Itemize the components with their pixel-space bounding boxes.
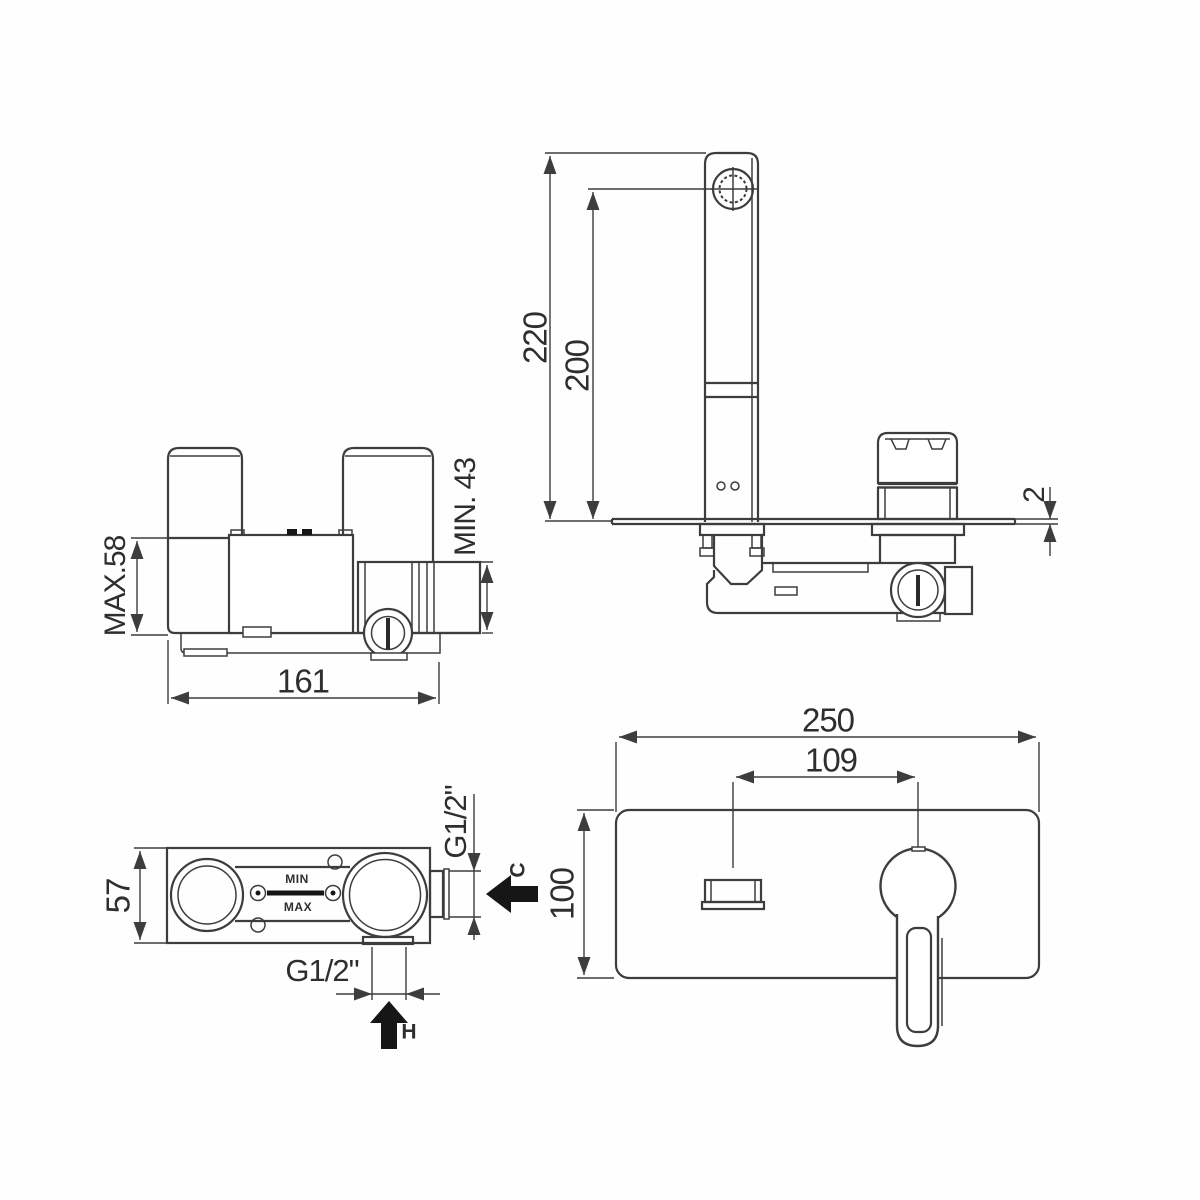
hot-inlet-arrow: H bbox=[370, 1001, 417, 1049]
cold-arrow-glyph bbox=[486, 875, 538, 913]
dim-220-label: 220 bbox=[517, 311, 554, 364]
rear-central-box bbox=[229, 529, 353, 637]
spout-outlet-lip bbox=[702, 902, 764, 909]
protection-cap-right bbox=[343, 448, 433, 562]
dim-total-height: 220 bbox=[517, 153, 706, 521]
rear-view: MAX.58 MIN. 43 161 bbox=[99, 448, 493, 704]
dim-max58-label: MAX.58 bbox=[99, 535, 132, 636]
top-valve-outer bbox=[343, 853, 427, 937]
box-tab-center-2 bbox=[302, 529, 312, 535]
dim-109-label: 109 bbox=[805, 742, 857, 779]
box-tab-right bbox=[339, 530, 352, 535]
dim-spout-to-handle: 109 bbox=[736, 742, 915, 779]
max-label: MAX bbox=[284, 900, 312, 914]
cold-connector-stub bbox=[430, 871, 443, 917]
handle-rosette bbox=[881, 849, 956, 924]
side-view: 220 200 2 bbox=[517, 153, 1058, 621]
spout-flange bbox=[700, 524, 764, 535]
side-view-wall-plate bbox=[612, 519, 1015, 524]
dim-plate-thickness: 2 bbox=[1015, 487, 1058, 556]
top-view: MIN MAX 57 G1/2" C bbox=[100, 785, 538, 1049]
protection-cap-left bbox=[168, 448, 242, 538]
drawing-canvas: 220 200 2 bbox=[0, 0, 1200, 1200]
cartridge-cylinder bbox=[880, 535, 955, 563]
dim-200-label: 200 bbox=[559, 339, 596, 392]
dim-min43-label: MIN. 43 bbox=[449, 458, 482, 556]
dim-plate-height: 100 bbox=[544, 810, 614, 978]
side-view-concealed-body bbox=[700, 524, 972, 621]
dim-body-depth: 57 bbox=[100, 848, 167, 943]
top-spout-port-outer bbox=[171, 859, 243, 931]
dim-250-label: 250 bbox=[802, 702, 855, 739]
spout-set-screw-1 bbox=[717, 482, 725, 490]
rear-valve-foot bbox=[371, 653, 407, 660]
handle-top-notch bbox=[912, 847, 925, 851]
front-spout-outlet bbox=[702, 880, 764, 909]
spout-bolt-1 bbox=[703, 535, 712, 548]
gauge-screw-left-dot bbox=[256, 891, 261, 896]
dim-100-label: 100 bbox=[544, 867, 581, 920]
spout-inlet-fitting bbox=[714, 535, 762, 584]
central-box-outline bbox=[229, 535, 353, 633]
body-right-box bbox=[945, 567, 972, 614]
dim-g12-hot-label: G1/2" bbox=[285, 953, 358, 988]
box-tab-center-1 bbox=[287, 529, 297, 535]
cold-connector-endplate bbox=[444, 869, 449, 919]
spout-set-screw-2 bbox=[731, 482, 739, 490]
hot-connector-plate bbox=[363, 937, 413, 944]
side-view-spout bbox=[705, 153, 758, 522]
cold-inlet-arrow: C bbox=[486, 862, 538, 913]
box-bottom-clip bbox=[243, 627, 271, 637]
front-view: 250 109 100 bbox=[544, 702, 1039, 1046]
technical-drawing-page: 220 200 2 bbox=[0, 0, 1200, 1200]
side-view-handle bbox=[878, 433, 957, 519]
spout-bolt-2 bbox=[752, 535, 761, 548]
spout-outlet-body bbox=[705, 880, 761, 902]
dim-2-label: 2 bbox=[1018, 487, 1051, 503]
dim-min-depth: MIN. 43 bbox=[437, 458, 493, 633]
body-detail-slot bbox=[775, 587, 797, 595]
trim-plate bbox=[616, 810, 1039, 978]
handle-base bbox=[878, 488, 957, 520]
rear-body-foot-left bbox=[184, 649, 227, 656]
dim-max-depth: MAX.58 bbox=[99, 535, 168, 636]
dim-57-label: 57 bbox=[100, 879, 137, 914]
cold-arrow-label: C bbox=[507, 862, 530, 877]
handle-flange bbox=[872, 524, 964, 535]
dim-g12-cold-label: G1/2" bbox=[438, 785, 473, 858]
front-handle bbox=[881, 847, 956, 1046]
gauge-screw-right-dot bbox=[331, 891, 336, 896]
min-label: MIN bbox=[285, 872, 309, 886]
spout-bolt-head-1 bbox=[700, 548, 714, 556]
dim-hot-thread: G1/2" bbox=[285, 947, 440, 1000]
dim-161-label: 161 bbox=[277, 663, 329, 700]
hot-arrow-label: H bbox=[401, 1021, 416, 1044]
body-top-slot bbox=[773, 563, 868, 572]
dim-spout-height: 200 bbox=[559, 189, 713, 519]
